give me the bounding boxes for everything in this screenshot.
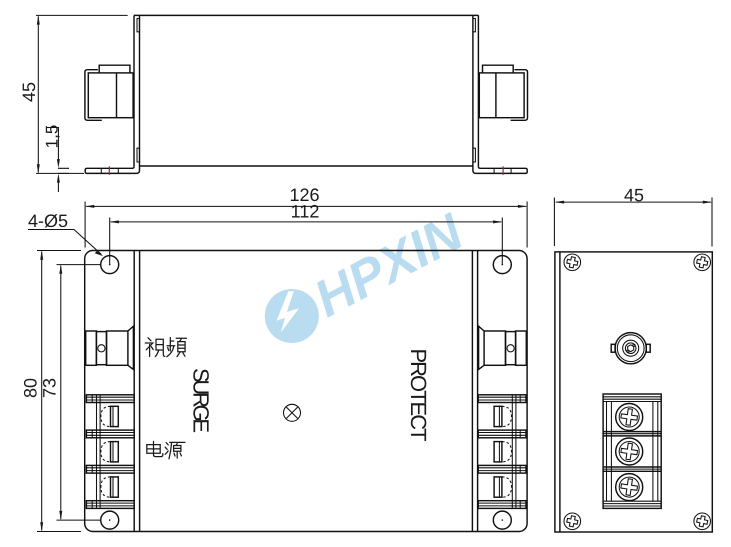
svg-text:SURGE: SURGE xyxy=(189,368,214,433)
svg-text:80: 80 xyxy=(21,378,41,398)
svg-text:1,5: 1,5 xyxy=(43,125,62,149)
svg-text:73: 73 xyxy=(40,378,60,398)
svg-text:45: 45 xyxy=(19,82,39,102)
svg-text:PROTECT: PROTECT xyxy=(406,349,431,442)
svg-text:112: 112 xyxy=(291,201,320,221)
svg-text:4-Ø5: 4-Ø5 xyxy=(28,211,68,231)
